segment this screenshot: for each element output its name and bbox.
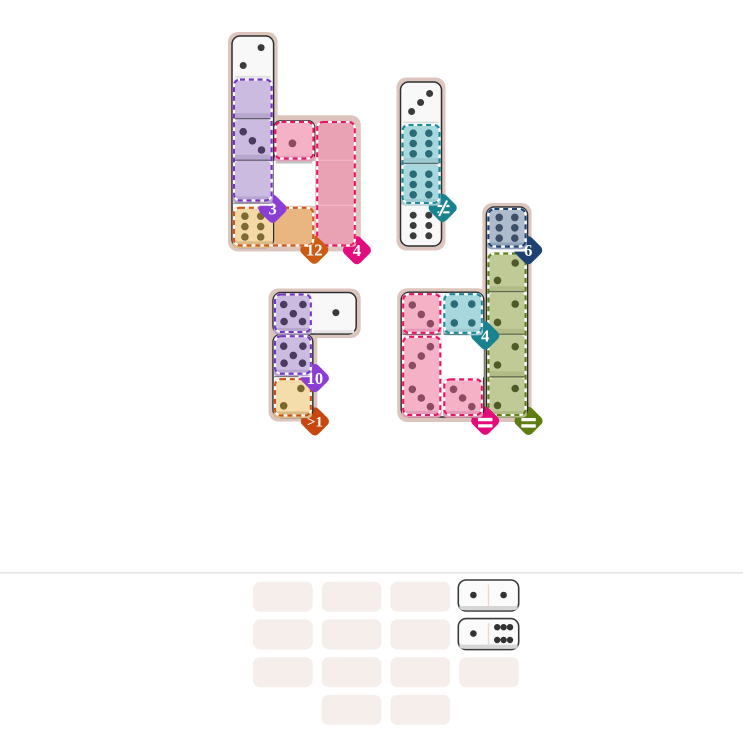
svg-text:3: 3 bbox=[268, 199, 276, 218]
svg-text:4: 4 bbox=[353, 241, 361, 260]
svg-text:>1: >1 bbox=[307, 415, 323, 431]
svg-text:6: 6 bbox=[524, 241, 532, 260]
svg-text:10: 10 bbox=[307, 369, 324, 388]
svg-text:4: 4 bbox=[481, 326, 489, 345]
svg-text:12: 12 bbox=[306, 241, 323, 260]
